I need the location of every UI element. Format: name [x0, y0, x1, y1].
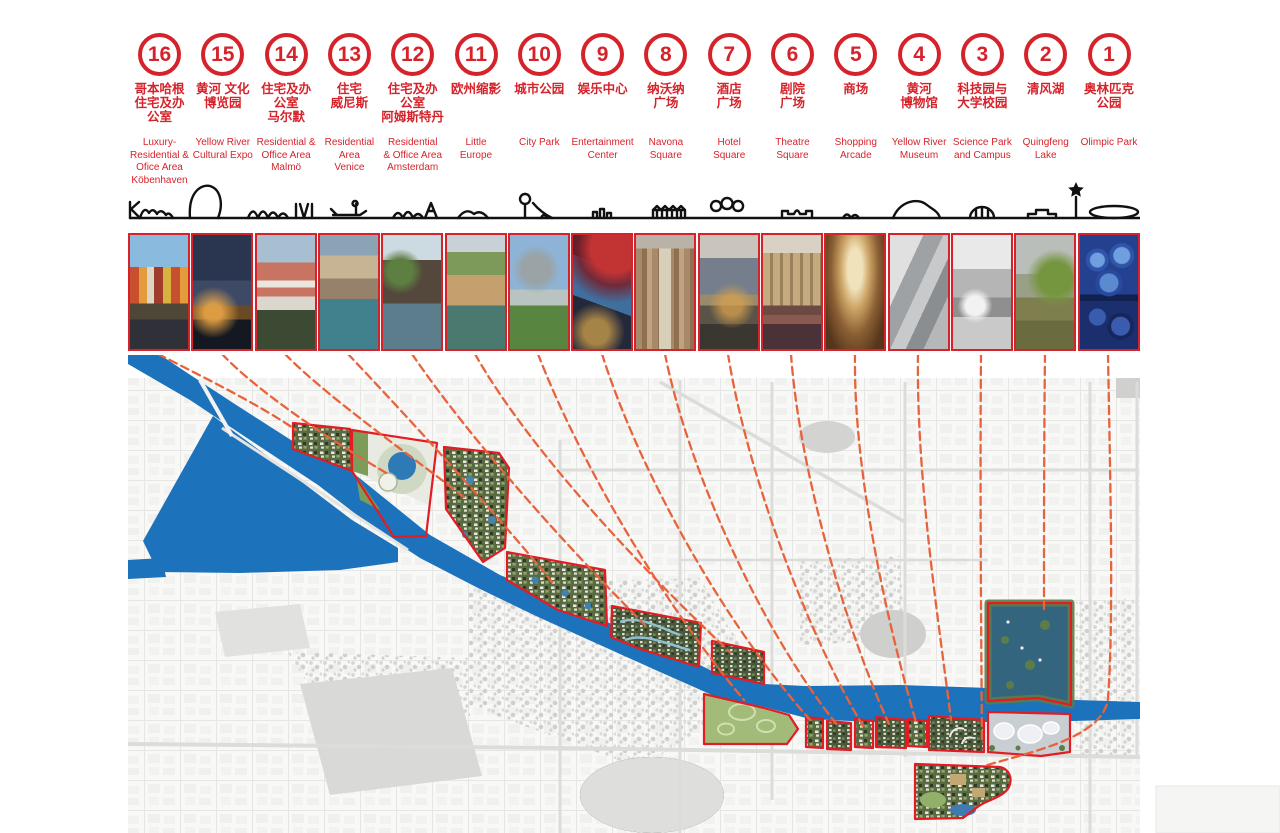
venice-canal-photo — [318, 233, 380, 351]
theatre-square-crowd-photo — [761, 233, 823, 351]
site-number-badge: 6 — [771, 33, 814, 76]
qingfeng-lake-trees-photo — [1014, 233, 1076, 351]
site-number-badge: 2 — [1024, 33, 1067, 76]
site-number-badge: 7 — [708, 33, 751, 76]
city-skyline-outline — [128, 180, 1140, 238]
parcel-7 — [855, 719, 873, 748]
legend-column-site-1: 1奥林匹克 公园Olimpic Park — [1071, 33, 1147, 110]
site-number-badge: 3 — [961, 33, 1004, 76]
parcel-6 — [876, 717, 906, 748]
lake-arm — [128, 558, 166, 579]
site-number-badge: 16 — [138, 33, 181, 76]
site-number-badge: 13 — [328, 33, 371, 76]
parcel-4 — [929, 716, 984, 752]
site-label-chinese: 奥林匹克 公园 — [1071, 82, 1147, 110]
masterplan-map — [0, 355, 1280, 833]
entertainment-center-canopy-photo — [571, 233, 633, 351]
shopping-arcade-galleria-photo — [824, 233, 886, 351]
skyline-left — [130, 186, 552, 218]
little-europe-village-photo — [445, 233, 507, 351]
parcel-9 — [806, 717, 823, 748]
water-cube-photo — [1078, 233, 1140, 351]
malmo-waterfront-photo — [255, 233, 317, 351]
museum-modern-concrete-photo — [888, 233, 950, 351]
site-number-badge: 14 — [265, 33, 308, 76]
site-number-badge: 1 — [1088, 33, 1131, 76]
stadium-ellipse — [1090, 206, 1138, 218]
site-number-badge: 5 — [834, 33, 877, 76]
city-park-cathedral-photo — [508, 233, 570, 351]
site-number-badge: 15 — [201, 33, 244, 76]
skyline-right — [593, 197, 1076, 218]
night-skyline-expo-photo — [191, 233, 253, 351]
parcel-2-qingfeng-lake — [988, 603, 1071, 705]
hotel-square-dusk-photo — [698, 233, 760, 351]
masterplan-board: 16哥本哈根 住宅及办 公室Luxury- Residential & Ofic… — [0, 0, 1280, 833]
site-number-badge: 11 — [455, 33, 498, 76]
navona-square-market-photo — [634, 233, 696, 351]
parcel-5 — [908, 719, 927, 747]
star-icon — [1068, 182, 1084, 197]
site-label-english: Olimpic Park — [1071, 137, 1147, 150]
parcel-8 — [827, 721, 851, 750]
amsterdam-canal-houses-photo — [381, 233, 443, 351]
site-number-badge: 4 — [898, 33, 941, 76]
copenhagen-nyhavn-photo — [128, 233, 190, 351]
site-number-badge: 8 — [644, 33, 687, 76]
campus-rotunda-photo — [951, 233, 1013, 351]
site-number-badge: 9 — [581, 33, 624, 76]
parcel-3-science-park — [988, 712, 1070, 756]
site-number-badge: 12 — [391, 33, 434, 76]
site-number-badge: 10 — [518, 33, 561, 76]
